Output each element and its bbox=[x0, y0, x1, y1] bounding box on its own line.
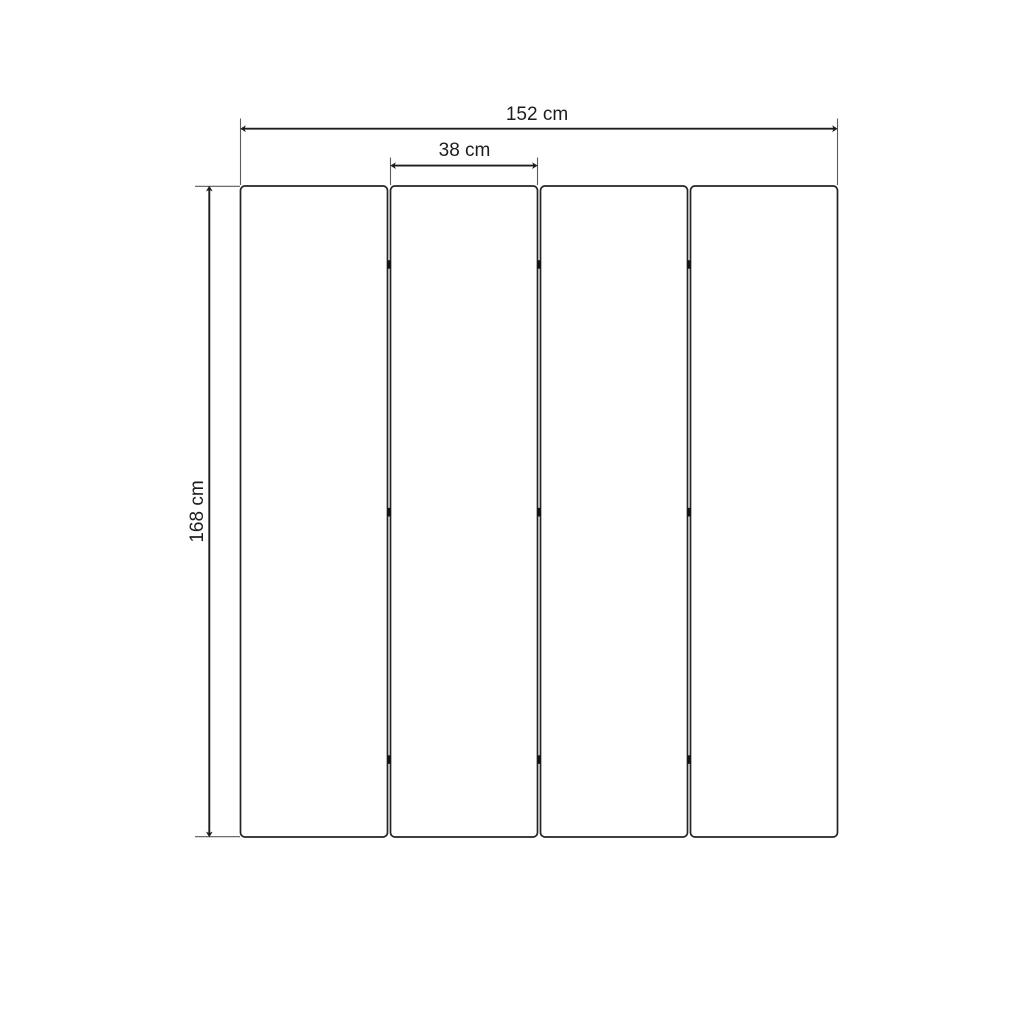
svg-text:38 cm: 38 cm bbox=[439, 140, 491, 161]
svg-text:168 cm: 168 cm bbox=[187, 480, 208, 542]
svg-text:152 cm: 152 cm bbox=[506, 104, 568, 125]
